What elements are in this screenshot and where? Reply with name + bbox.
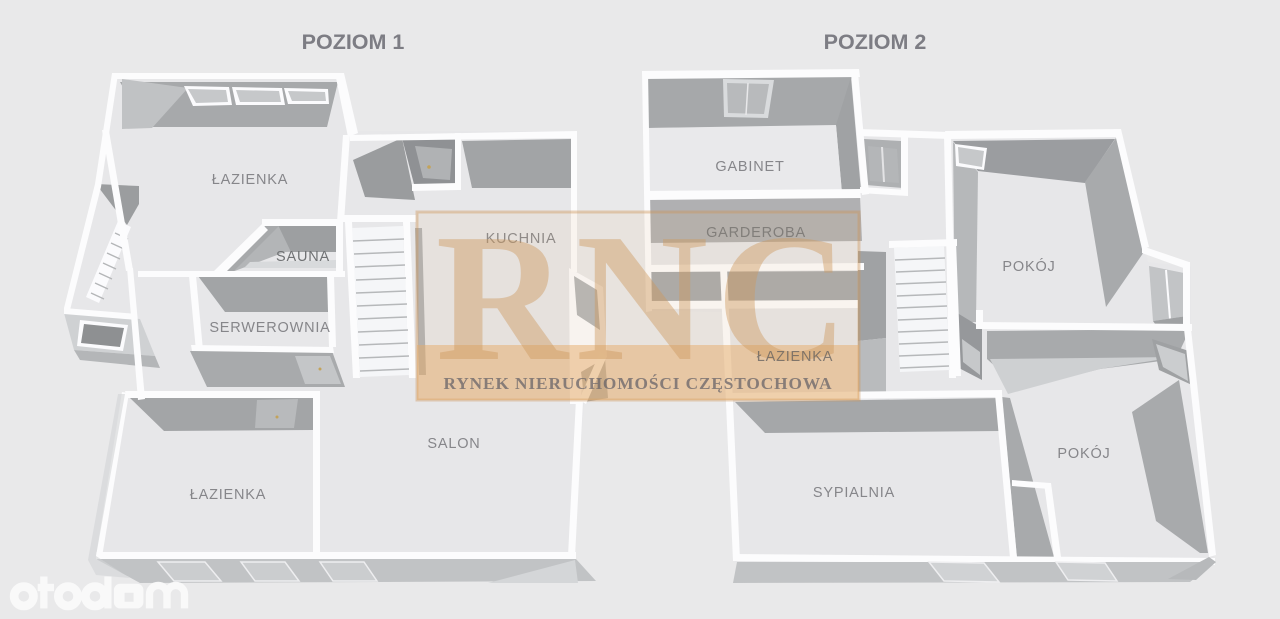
svg-text:ŁAZIENKA: ŁAZIENKA — [757, 349, 834, 365]
svg-text:SALON: SALON — [427, 436, 480, 452]
svg-text:RNC: RNC — [436, 196, 856, 399]
svg-text:POZIOM 2: POZIOM 2 — [824, 30, 927, 54]
svg-text:POKÓJ: POKÓJ — [1002, 258, 1055, 275]
svg-text:SERWEROWNIA: SERWEROWNIA — [209, 320, 330, 336]
svg-text:SYPIALNIA: SYPIALNIA — [813, 485, 895, 501]
svg-text:GABINET: GABINET — [715, 159, 784, 175]
svg-text:ŁAZIENKA: ŁAZIENKA — [190, 487, 267, 503]
svg-text:RYNEK NIERUCHOMOŚCI CZĘSTOCHOW: RYNEK NIERUCHOMOŚCI CZĘSTOCHOWA — [444, 374, 833, 393]
svg-text:ŁAZIENKA: ŁAZIENKA — [212, 172, 289, 188]
svg-text:SAUNA: SAUNA — [276, 249, 330, 265]
svg-text:POKÓJ: POKÓJ — [1057, 445, 1110, 462]
svg-text:POZIOM 1: POZIOM 1 — [302, 30, 405, 54]
